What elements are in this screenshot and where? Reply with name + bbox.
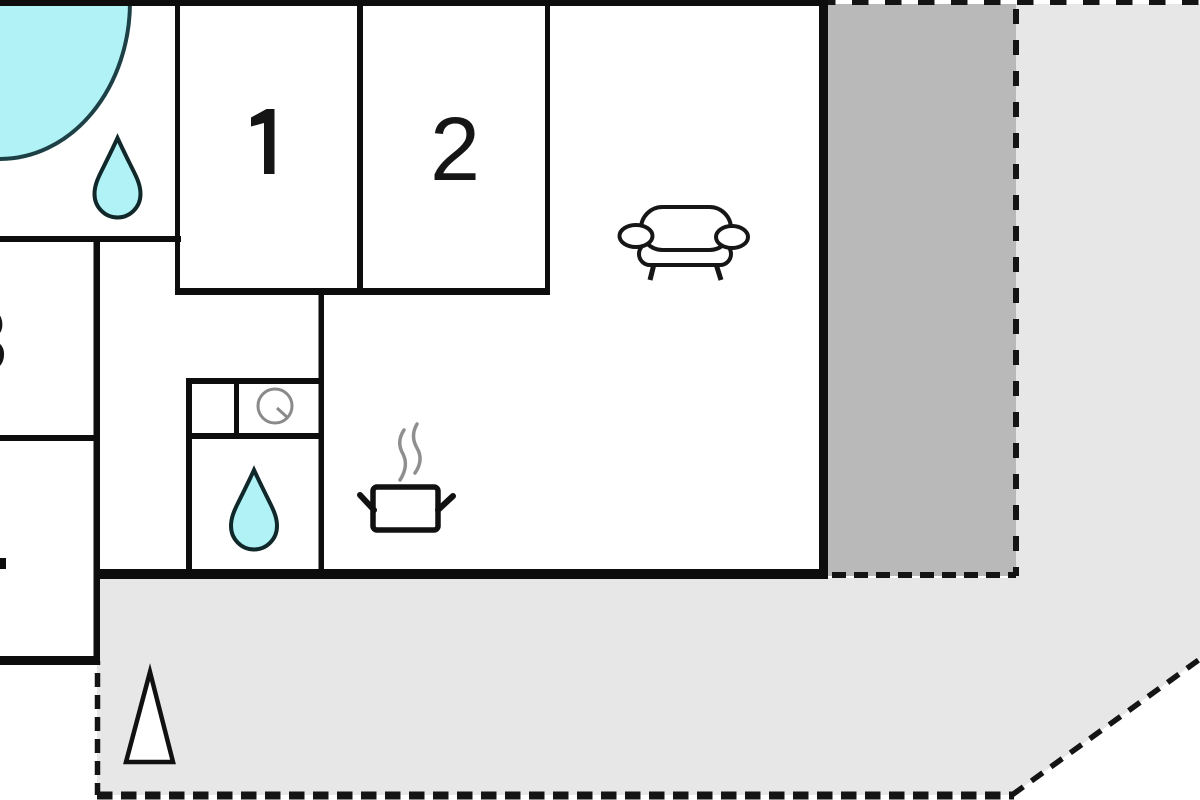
svg-text:3: 3	[0, 291, 8, 391]
svg-text:2: 2	[430, 100, 480, 200]
